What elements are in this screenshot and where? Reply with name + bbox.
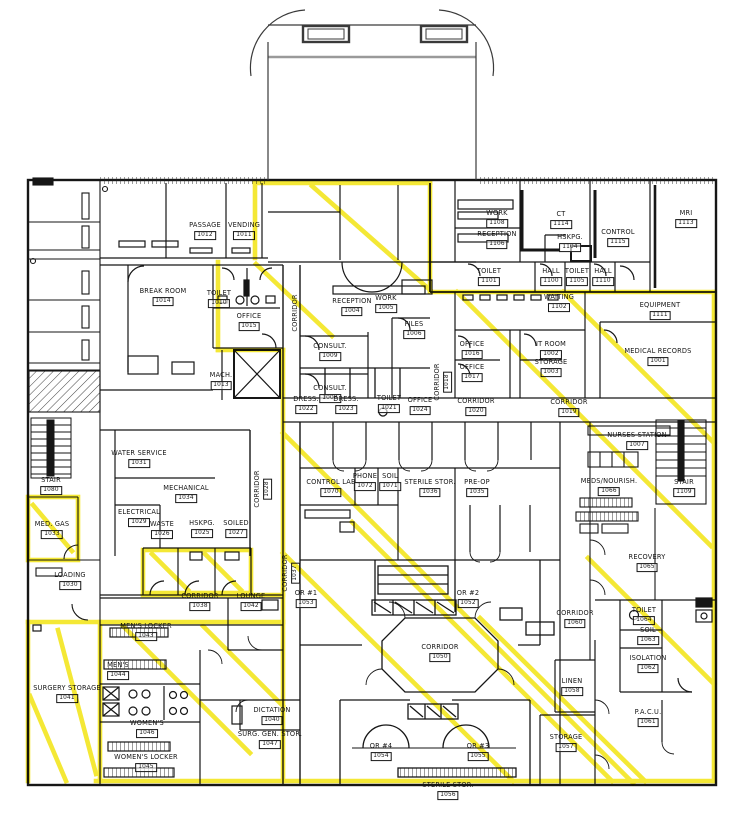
room-name: MECHANICAL xyxy=(163,485,209,493)
room-name: MACH. xyxy=(210,372,233,380)
room-labels-layer: PASSAGE1012VENDING1011BREAK ROOM1014TOIL… xyxy=(0,0,729,815)
room-label-toilet: TOILET1064 xyxy=(632,607,656,625)
room-label-or-2: OR #21052 xyxy=(457,590,480,608)
room-name: EQUIPMENT xyxy=(640,302,681,310)
room-number-tag: 1110 xyxy=(592,277,614,286)
room-label-stair: STAIR1080 xyxy=(40,477,62,495)
room-label-women-s-locker: WOMEN'S LOCKER1045 xyxy=(114,754,178,772)
room-name: RECEPTION xyxy=(332,298,371,306)
room-label-corridor: CORRIDOR1050 xyxy=(421,644,458,662)
room-number-tag: 1028 xyxy=(263,478,272,500)
room-number-tag: 1036 xyxy=(419,488,441,497)
room-name: BREAK ROOM xyxy=(140,288,187,296)
room-name: CT xyxy=(550,211,572,219)
room-number-tag: 1003 xyxy=(540,368,562,377)
room-label-stair: STAIR1109 xyxy=(673,479,695,497)
room-name: WOMEN'S LOCKER xyxy=(114,754,178,762)
room-name: ISOLATION xyxy=(629,655,666,663)
room-number-tag: 1012 xyxy=(194,231,216,240)
room-label-hall: HALL1100 xyxy=(540,268,562,286)
room-number-tag: 1021 xyxy=(378,404,400,413)
room-name: RECEPTION xyxy=(477,231,516,239)
room-label-mri: MRI1113 xyxy=(675,210,697,228)
room-label-surgery-storage: SURGERY STORAGE1041 xyxy=(33,685,101,703)
room-label-corridor: CORRIDOR1019 xyxy=(550,399,587,417)
room-label-corridor: CORRIDOR1038 xyxy=(181,593,218,611)
room-name: MEDS/NOURISH. xyxy=(581,478,638,486)
room-label-corridor: CORRIDOR xyxy=(292,294,300,331)
room-label-or-4: OR #41054 xyxy=(370,743,393,761)
room-label-corridor: CORRIDOR1018 xyxy=(434,363,452,400)
room-number-tag: 1019 xyxy=(558,408,580,417)
room-number-tag: 1007 xyxy=(626,441,648,450)
room-name: HSKPG. xyxy=(189,520,215,528)
room-name: OFFICE xyxy=(460,364,485,372)
room-label-work: WORK1108 xyxy=(486,210,508,228)
room-number-tag: 1060 xyxy=(564,619,586,628)
room-number-tag: 1017 xyxy=(461,373,483,382)
room-number-tag: 1035 xyxy=(466,488,488,497)
room-number-tag: 1102 xyxy=(548,303,570,312)
room-name: WATER SERVICE xyxy=(111,450,166,458)
room-label-women-s: WOMEN'S1046 xyxy=(130,720,164,738)
room-name: DICTATION xyxy=(253,707,290,715)
room-number-tag: 1005 xyxy=(375,304,397,313)
room-number-tag: 1058 xyxy=(561,687,583,696)
room-number-tag: 1018 xyxy=(443,371,452,393)
room-label-corridor: CORRIDOR1037 xyxy=(282,554,300,591)
room-label-corridor: CORRIDOR1028 xyxy=(254,470,272,507)
room-name: SOIL xyxy=(379,473,401,481)
room-number-tag: 1038 xyxy=(189,602,211,611)
room-name: DRESS. xyxy=(333,396,359,404)
room-label-sterile-stor-: STERILE STOR.1056 xyxy=(422,782,473,800)
room-label-reception: RECEPTION1106 xyxy=(477,231,516,249)
room-label-break-room: BREAK ROOM1014 xyxy=(140,288,187,306)
room-name: CORRIDOR xyxy=(550,399,587,407)
room-number-tag: 1062 xyxy=(637,664,659,673)
room-name: TOILET xyxy=(565,268,589,276)
room-number-tag: 1041 xyxy=(56,694,78,703)
room-name: OR #4 xyxy=(370,743,393,751)
room-number-tag: 1009 xyxy=(319,352,341,361)
room-name: STORAGE xyxy=(535,359,568,367)
room-label-sterile-stor-: STERILE STOR.1036 xyxy=(404,479,455,497)
room-name: WORK xyxy=(375,295,397,303)
room-name: WASTE xyxy=(150,521,174,529)
room-number-tag: 1065 xyxy=(636,563,658,572)
room-name: MEDICAL RECORDS xyxy=(624,348,691,356)
room-name: FILES xyxy=(403,321,425,329)
room-number-tag: 1064 xyxy=(633,616,655,625)
room-name: HALL xyxy=(540,268,562,276)
room-label-toilet: TOILET1010 xyxy=(207,290,231,308)
room-name: CONSULT. xyxy=(313,343,346,351)
room-label-vending: VENDING1011 xyxy=(228,222,260,240)
room-number-tag: 1063 xyxy=(637,636,659,645)
room-label-mechanical: MECHANICAL1034 xyxy=(163,485,209,503)
room-name: STERILE STOR. xyxy=(404,479,455,487)
room-number-tag: 1023 xyxy=(335,405,357,414)
room-number-tag: 1105 xyxy=(566,277,588,286)
room-name: TOILET xyxy=(207,290,231,298)
room-name: IT ROOM xyxy=(536,341,566,349)
room-name: TOILET xyxy=(632,607,656,615)
room-name: MRI xyxy=(675,210,697,218)
room-name: LOUNGE xyxy=(237,593,266,601)
room-label-it-room: IT ROOM1002 xyxy=(536,341,566,359)
room-number-tag: 1109 xyxy=(673,488,695,497)
room-name: CORRIDOR xyxy=(421,644,458,652)
room-label-hskpg-: HSKPG.1104 xyxy=(557,234,583,252)
room-label-surg-gen-stor-: SURG. GEN. STOR.1047 xyxy=(238,731,302,749)
room-name: ELECTRICAL xyxy=(118,509,160,517)
room-name: WOMEN'S xyxy=(130,720,164,728)
room-label-meds-nourish-: MEDS/NOURISH.1066 xyxy=(581,478,638,496)
room-name: OFFICE xyxy=(460,341,485,349)
room-number-tag: 1054 xyxy=(370,752,392,761)
room-number-tag: 1001 xyxy=(647,357,669,366)
room-number-tag: 1004 xyxy=(341,307,363,316)
room-name: CORRIDOR xyxy=(254,470,262,507)
room-label-soiled: SOILED1027 xyxy=(223,520,248,538)
room-number-tag: 1108 xyxy=(486,219,508,228)
room-label-work: WORK1005 xyxy=(375,295,397,313)
room-number-tag: 1057 xyxy=(555,743,577,752)
room-number-tag: 1027 xyxy=(225,529,247,538)
room-name: OR #2 xyxy=(457,590,480,598)
room-number-tag: 1066 xyxy=(598,487,620,496)
room-name: SURG. GEN. STOR. xyxy=(238,731,302,739)
room-label-medical-records: MEDICAL RECORDS1001 xyxy=(624,348,691,366)
room-name: DRESS. xyxy=(293,396,319,404)
room-label-water-service: WATER SERVICE1031 xyxy=(111,450,166,468)
room-label-storage: STORAGE1057 xyxy=(550,734,583,752)
room-number-tag: 1024 xyxy=(409,406,431,415)
room-number-tag: 1061 xyxy=(637,718,659,727)
room-number-tag: 1014 xyxy=(152,297,174,306)
room-label-loading: LOADING1030 xyxy=(54,572,86,590)
room-number-tag: 1104 xyxy=(559,243,581,252)
room-label-isolation: ISOLATION1062 xyxy=(629,655,666,673)
room-name: LOADING xyxy=(54,572,86,580)
room-name: OR #3 xyxy=(467,743,490,751)
room-label-toilet: TOILET1105 xyxy=(565,268,589,286)
room-label-files: FILES1006 xyxy=(403,321,425,339)
room-name: STAIR xyxy=(40,477,62,485)
room-number-tag: 1042 xyxy=(240,602,262,611)
room-number-tag: 1100 xyxy=(540,277,562,286)
room-number-tag: 1072 xyxy=(354,482,376,491)
room-number-tag: 1034 xyxy=(175,494,197,503)
room-label-med-gas: MED. GAS1033 xyxy=(35,521,70,539)
room-number-tag: 1013 xyxy=(210,381,232,390)
room-label-consult-: CONSULT.1009 xyxy=(313,343,346,361)
room-name: CORRIDOR xyxy=(556,610,593,618)
room-label-phone: PHONE1072 xyxy=(353,473,377,491)
room-label-control: CONTROL1115 xyxy=(601,229,635,247)
room-label-toilet: TOILET1021 xyxy=(377,395,401,413)
room-number-tag: 1056 xyxy=(437,791,459,800)
room-number-tag: 1106 xyxy=(486,240,508,249)
room-label-waiting: WAITING1102 xyxy=(544,294,574,312)
room-name: PHONE xyxy=(353,473,377,481)
room-number-tag: 1010 xyxy=(208,299,230,308)
room-number-tag: 1047 xyxy=(259,740,281,749)
room-name: CONTROL xyxy=(601,229,635,237)
room-number-tag: 1114 xyxy=(550,220,572,229)
room-number-tag: 1101 xyxy=(478,277,500,286)
room-name: OFFICE xyxy=(237,313,262,321)
room-number-tag: 1071 xyxy=(379,482,401,491)
room-name: STAIR xyxy=(673,479,695,487)
room-label-mach-: MACH.1013 xyxy=(210,372,233,390)
room-name: HSKPG. xyxy=(557,234,583,242)
room-number-tag: 1113 xyxy=(675,219,697,228)
room-label-soil: SOIL1071 xyxy=(379,473,401,491)
room-number-tag: 1053 xyxy=(295,599,317,608)
room-name: CONSULT. xyxy=(313,385,346,393)
room-number-tag: 1080 xyxy=(40,486,62,495)
room-name: MEN'S xyxy=(107,662,129,670)
room-name: STERILE STOR. xyxy=(422,782,473,790)
room-name: TOILET xyxy=(377,395,401,403)
room-name: PRE-OP xyxy=(464,479,490,487)
room-number-tag: 1040 xyxy=(261,716,283,725)
room-number-tag: 1045 xyxy=(135,763,157,772)
room-name: VENDING xyxy=(228,222,260,230)
room-label-dictation: DICTATION1040 xyxy=(253,707,290,725)
room-label-ct: CT1114 xyxy=(550,211,572,229)
room-number-tag: 1033 xyxy=(41,530,63,539)
room-number-tag: 1006 xyxy=(403,330,425,339)
room-number-tag: 1031 xyxy=(128,459,150,468)
room-number-tag: 1052 xyxy=(457,599,479,608)
room-number-tag: 1055 xyxy=(467,752,489,761)
room-label-men-s: MEN'S1044 xyxy=(107,662,129,680)
room-name: SURGERY STORAGE xyxy=(33,685,101,693)
room-number-tag: 1029 xyxy=(128,518,150,527)
room-name: P.A.C.U. xyxy=(635,709,662,717)
room-label-equipment: EQUIPMENT1111 xyxy=(640,302,681,320)
room-label-corridor: CORRIDOR1020 xyxy=(457,398,494,416)
room-label-hall: HALL1110 xyxy=(592,268,614,286)
room-name: LINEN xyxy=(561,678,583,686)
room-label-corridor: CORRIDOR1060 xyxy=(556,610,593,628)
room-number-tag: 1044 xyxy=(107,671,129,680)
room-number-tag: 1030 xyxy=(59,581,81,590)
room-label-recovery: RECOVERY1065 xyxy=(629,554,666,572)
room-name: STORAGE xyxy=(550,734,583,742)
room-label-pre-op: PRE-OP1035 xyxy=(464,479,490,497)
room-name: OR #1 xyxy=(295,590,318,598)
room-number-tag: 1050 xyxy=(429,653,451,662)
room-label-or-3: OR #31055 xyxy=(467,743,490,761)
floor-plan: PASSAGE1012VENDING1011BREAK ROOM1014TOIL… xyxy=(0,0,729,815)
room-number-tag: 1025 xyxy=(191,529,213,538)
room-label-control-lab: CONTROL LAB1070 xyxy=(306,479,355,497)
room-name: MEN'S LOCKER xyxy=(120,623,172,631)
room-label-lounge: LOUNGE1042 xyxy=(237,593,266,611)
room-name: HALL xyxy=(592,268,614,276)
room-number-tag: 1026 xyxy=(151,530,173,539)
room-name: WORK xyxy=(486,210,508,218)
room-number-tag: 1020 xyxy=(465,407,487,416)
room-number-tag: 1022 xyxy=(295,405,317,414)
room-label-p-a-c-u-: P.A.C.U.1061 xyxy=(635,709,662,727)
room-label-passage: PASSAGE1012 xyxy=(189,222,221,240)
room-label-office: OFFICE1015 xyxy=(237,313,262,331)
room-label-dress-: DRESS.1023 xyxy=(333,396,359,414)
room-label-office: OFFICE1024 xyxy=(408,397,433,415)
room-label-office: OFFICE1017 xyxy=(460,364,485,382)
room-number-tag: 1115 xyxy=(607,238,629,247)
room-name: OFFICE xyxy=(408,397,433,405)
room-number-tag: 1070 xyxy=(320,488,342,497)
room-number-tag: 1046 xyxy=(136,729,158,738)
room-name: WAITING xyxy=(544,294,574,302)
room-label-office: OFFICE1016 xyxy=(460,341,485,359)
room-label-waste: WASTE1026 xyxy=(150,521,174,539)
room-name: TOILET xyxy=(477,268,501,276)
room-name: CONTROL LAB xyxy=(306,479,355,487)
room-label-toilet: TOILET1101 xyxy=(477,268,501,286)
room-label-dress-: DRESS.1022 xyxy=(293,396,319,414)
room-label-or-1: OR #11053 xyxy=(295,590,318,608)
room-name: CORRIDOR xyxy=(181,593,218,601)
room-name: CORRIDOR xyxy=(457,398,494,406)
room-name: PASSAGE xyxy=(189,222,221,230)
room-label-soil: SOIL1063 xyxy=(637,627,659,645)
room-label-hskpg-: HSKPG.1025 xyxy=(189,520,215,538)
room-number-tag: 1111 xyxy=(649,311,671,320)
room-number-tag: 1011 xyxy=(233,231,255,240)
room-label-men-s-locker: MEN'S LOCKER1043 xyxy=(120,623,172,641)
room-label-storage: STORAGE1003 xyxy=(535,359,568,377)
room-number-tag: 1016 xyxy=(461,350,483,359)
room-name: SOIL xyxy=(637,627,659,635)
room-name: SOILED xyxy=(223,520,248,528)
room-number-tag: 1015 xyxy=(238,322,260,331)
room-label-reception: RECEPTION1004 xyxy=(332,298,371,316)
room-name: NURSES STATION xyxy=(607,432,667,440)
room-name: CORRIDOR xyxy=(292,294,300,331)
room-name: MED. GAS xyxy=(35,521,70,529)
room-name: CORRIDOR xyxy=(282,554,290,591)
room-name: RECOVERY xyxy=(629,554,666,562)
room-name: CORRIDOR xyxy=(434,363,442,400)
room-label-linen: LINEN1058 xyxy=(561,678,583,696)
room-number-tag: 1043 xyxy=(135,632,157,641)
room-number-tag: 1037 xyxy=(291,562,300,584)
room-label-nurses-station: NURSES STATION1007 xyxy=(607,432,667,450)
